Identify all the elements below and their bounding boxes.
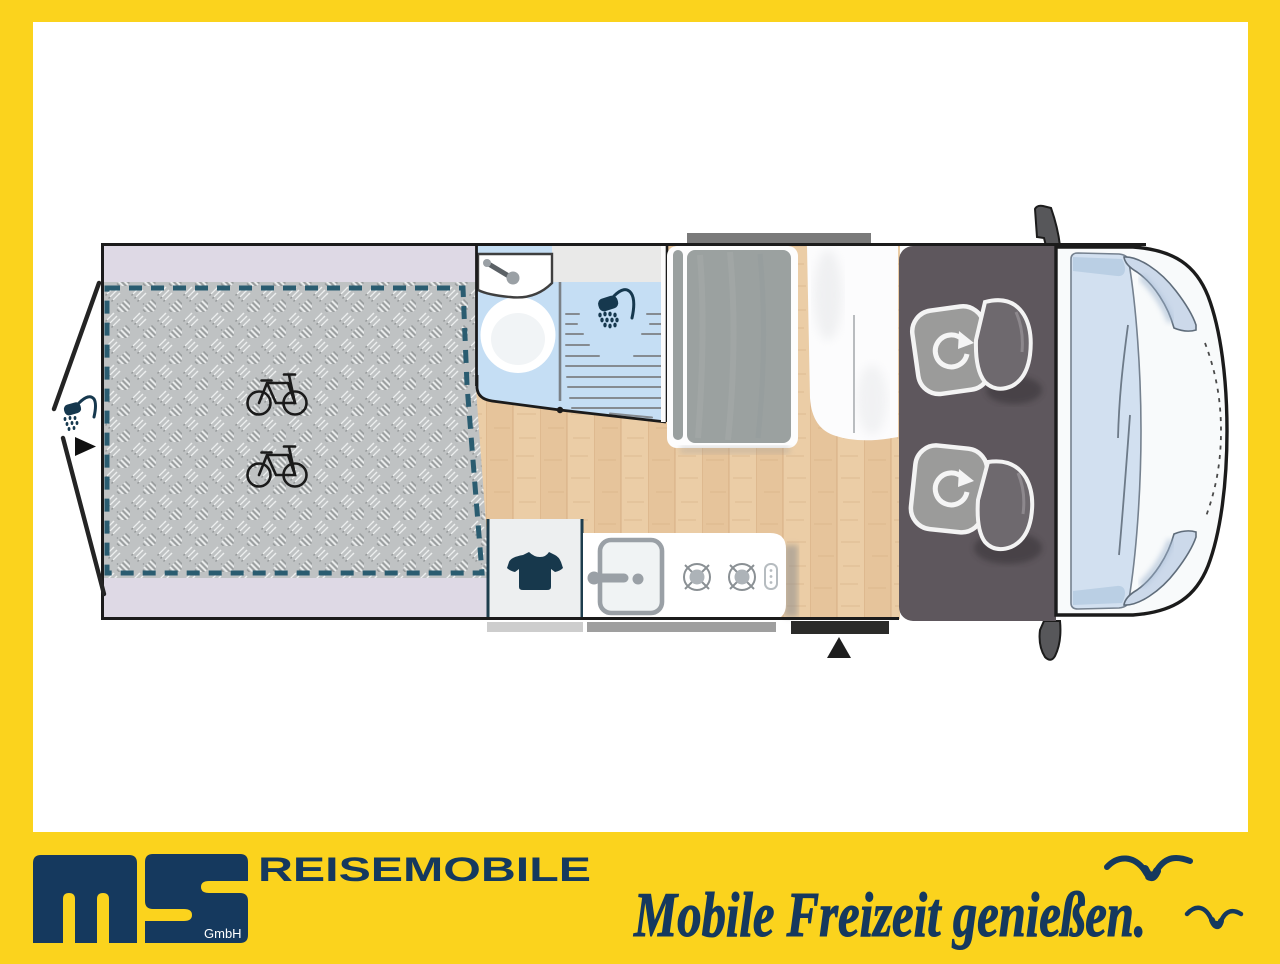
svg-text:REISEMOBILE: REISEMOBILE <box>258 851 591 889</box>
svg-text:GmbH: GmbH <box>204 926 242 941</box>
svg-text:Mobile Freizeit genießen.: Mobile Freizeit genießen. <box>633 880 1146 950</box>
